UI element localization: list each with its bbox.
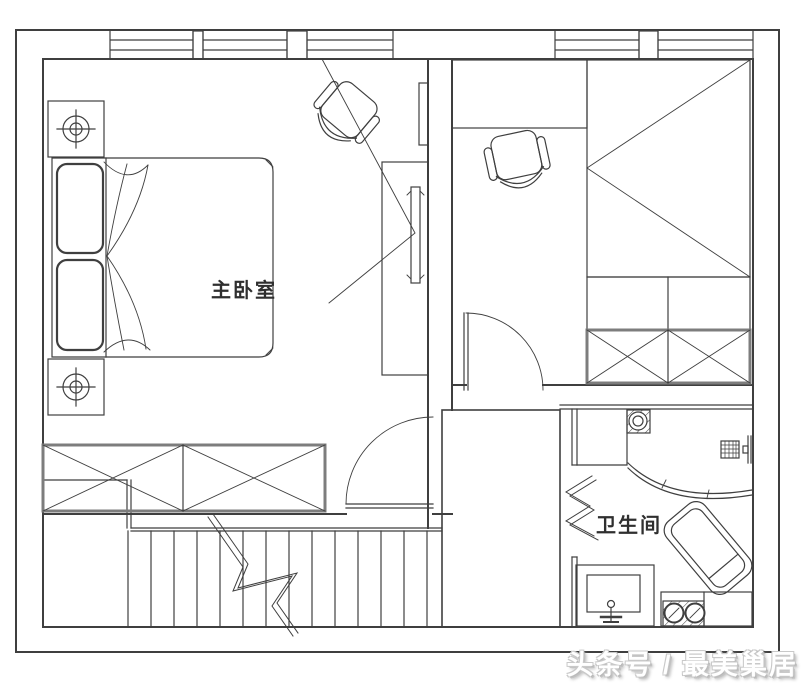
door-master-bedroom [346,417,433,508]
double-bed [52,158,273,357]
floor-plan: 主卧室 卫生间 头条号 / 最美巢居 [0,0,810,686]
tv [407,187,424,283]
bathroom-label: 卫生间 [596,509,662,538]
door-second-bedroom [464,313,543,390]
door-arc [466,313,543,390]
stairs [128,514,427,636]
tv-view-lines [322,59,415,303]
lamp-symbol [57,368,95,406]
desk [452,60,587,128]
nightstand [48,101,104,157]
single-bed [587,60,750,277]
mullion [193,31,658,59]
wardrobe-x-cabinet [587,330,750,383]
stair-break-line [208,514,298,636]
pillow [57,260,103,350]
blanket-folds [104,160,273,355]
door-arc [346,417,433,504]
wall-shelf [419,83,428,145]
master-bedroom-label: 主卧室 [211,274,277,303]
floor-plan-drawing [0,0,810,686]
toilet [627,410,650,433]
windows [110,31,753,59]
closet-shaft [442,410,560,627]
outer-wall [16,30,779,652]
window [110,31,193,59]
window [203,31,287,59]
bathtub [659,497,756,600]
pillow [57,164,103,253]
interior-walls [43,59,753,627]
office-chair [304,73,387,155]
shower-area [577,410,752,499]
shower-screen [628,463,752,499]
window [307,31,393,59]
wall-opening-zigzag [566,476,598,540]
office-chair [481,127,553,194]
nightstand [48,359,104,415]
watermark-text: 头条号 / 最美巢居 [566,643,798,682]
tv-cabinet [382,162,428,375]
wardrobe-x-cabinet [43,445,325,511]
vanity-sink [576,565,654,626]
window [555,31,639,59]
shower-mixer [721,436,751,463]
lamp-symbol [57,110,95,148]
faucet [601,601,621,623]
second-bedroom [452,60,750,383]
dresser [587,277,750,330]
window [658,31,753,59]
laundry-basins [661,592,752,626]
